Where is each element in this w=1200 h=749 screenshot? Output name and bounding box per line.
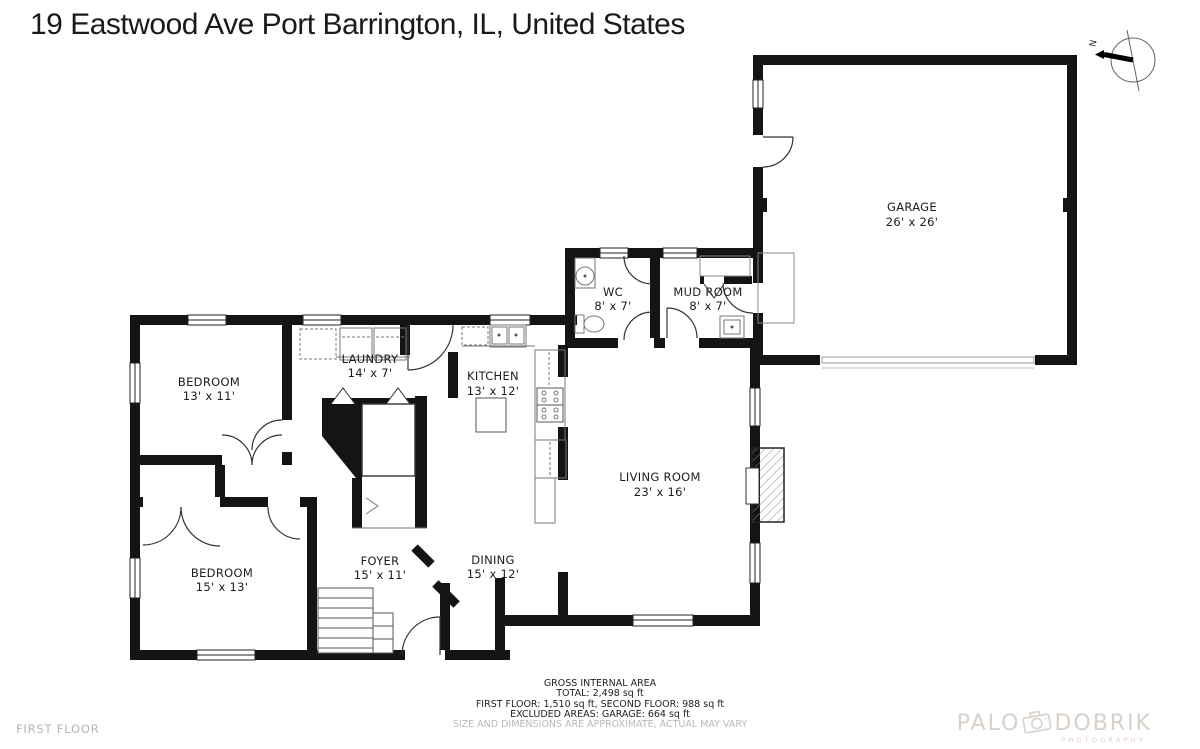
watermark-word2: DOBRIK [1054, 713, 1152, 735]
compass-north-label: N [1088, 39, 1099, 48]
svg-text:26' x 26': 26' x 26' [886, 215, 938, 229]
room-label-wc: WC 8' x 7' [594, 285, 631, 313]
compass-icon: N [1088, 30, 1155, 91]
svg-text:15' x 13': 15' x 13' [196, 580, 248, 594]
floor-plan-svg: GARAGE 26' x 26' WC 8' x 7' MUD ROOM 8' … [0, 0, 1200, 749]
photographer-watermark: PALO DOBRIK PHOTOGRAPHY [957, 712, 1152, 744]
svg-text:MUD ROOM: MUD ROOM [673, 285, 742, 299]
svg-text:GARAGE: GARAGE [887, 200, 937, 214]
svg-text:15' x 12': 15' x 12' [467, 567, 519, 581]
svg-text:WC: WC [603, 285, 623, 299]
floorplan-page: 19 Eastwood Ave Port Barrington, IL, Uni… [0, 0, 1200, 749]
svg-text:13' x 12': 13' x 12' [467, 384, 519, 398]
room-label-living-room: LIVING ROOM 23' x 16' [619, 470, 701, 499]
room-label-garage: GARAGE 26' x 26' [886, 200, 938, 229]
svg-text:8' x 7': 8' x 7' [594, 299, 631, 313]
room-label-foyer: FOYER 15' x 11' [354, 554, 406, 582]
room-label-dining: DINING 15' x 12' [467, 553, 519, 581]
svg-text:13' x 11': 13' x 11' [183, 389, 235, 403]
svg-text:BEDROOM: BEDROOM [191, 566, 253, 580]
svg-text:8' x 7': 8' x 7' [689, 299, 726, 313]
watermark-word1: PALO [957, 713, 1021, 735]
room-label-mud-room: MUD ROOM 8' x 7' [673, 285, 742, 313]
svg-text:FOYER: FOYER [361, 554, 400, 568]
camera-icon [1020, 707, 1054, 736]
room-label-kitchen: KITCHEN 13' x 12' [467, 369, 519, 398]
svg-text:LAUNDRY: LAUNDRY [342, 352, 399, 366]
watermark-subtitle: PHOTOGRAPHY [1061, 736, 1146, 744]
svg-text:LIVING ROOM: LIVING ROOM [619, 470, 701, 484]
svg-text:15' x 11': 15' x 11' [354, 568, 406, 582]
svg-text:KITCHEN: KITCHEN [467, 369, 519, 383]
room-label-bedroom-1: BEDROOM 13' x 11' [178, 375, 240, 403]
svg-text:BEDROOM: BEDROOM [178, 375, 240, 389]
room-label-laundry: LAUNDRY 14' x 7' [342, 352, 399, 380]
floor-label: FIRST FLOOR [16, 722, 99, 736]
room-label-bedroom-2: BEDROOM 15' x 13' [191, 566, 253, 594]
svg-text:DINING: DINING [471, 553, 515, 567]
svg-text:23' x 16': 23' x 16' [634, 485, 686, 499]
svg-text:14' x 7': 14' x 7' [348, 366, 393, 380]
